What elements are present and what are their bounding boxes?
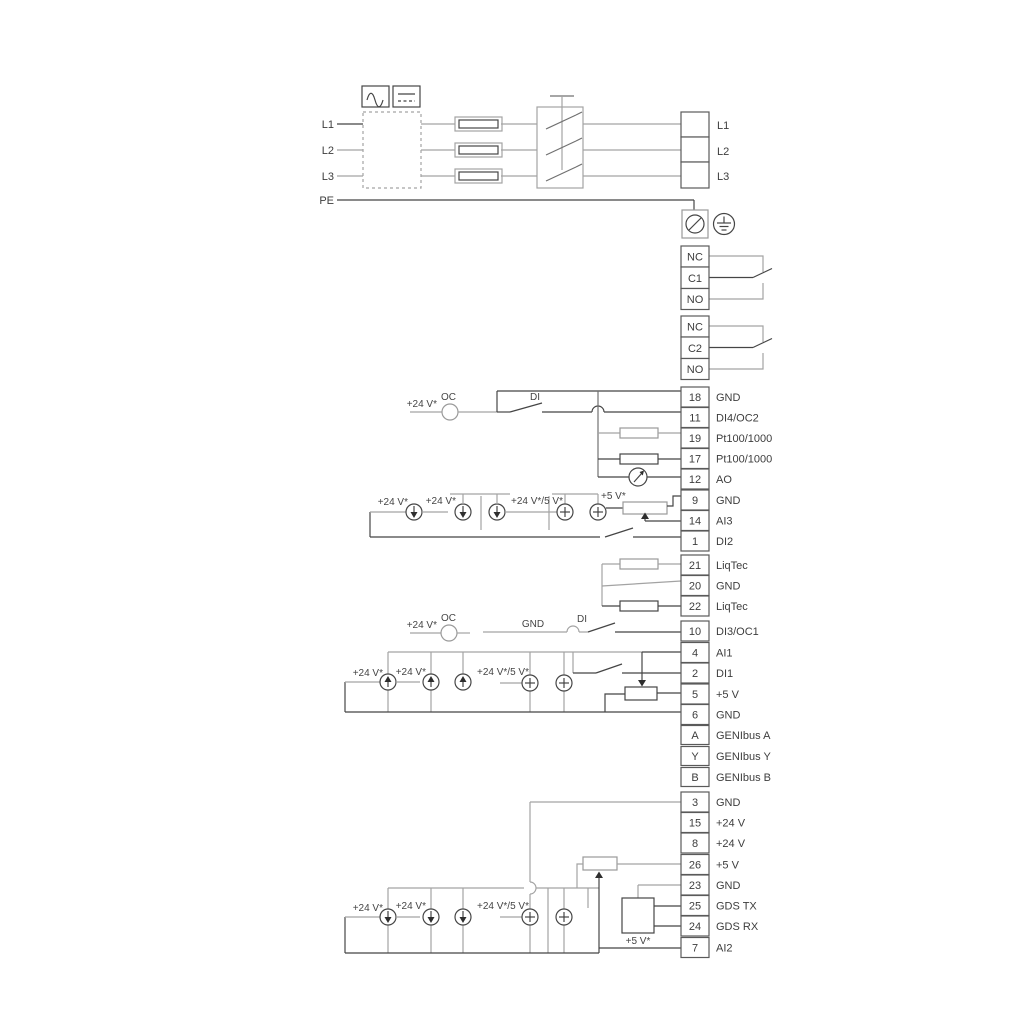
liqtec-sensor-icon: [620, 559, 658, 569]
terminal-23-label: GND: [716, 880, 741, 892]
potentiometer-icon: [625, 687, 657, 700]
terminal-24-number: 24: [689, 921, 701, 933]
terminal-10-label: DI3/OC1: [716, 626, 759, 638]
terminal-2-number: 2: [692, 668, 698, 680]
open-collector-label: OC: [441, 392, 456, 403]
terminal-11-number: 11: [689, 413, 700, 425]
terminal-a-number: A: [691, 730, 699, 742]
open-collector-circle-icon: [442, 404, 458, 420]
digital-input-2-circuit: +24 V* OC DI: [407, 391, 681, 486]
terminal-15-label: +24 V: [716, 818, 746, 830]
terminal-19-number: 19: [689, 433, 701, 445]
terminal-strip-genibus: A GENIbus A Y GENIbus Y B GENIbus B: [681, 726, 771, 787]
terminal-a-label: GENIbus A: [716, 730, 771, 742]
pump-wiring-diagram: L1 L2 L3 PE: [0, 0, 1024, 1024]
relay2-no-label: NO: [687, 364, 704, 376]
terminal-5-number: 5: [692, 689, 698, 701]
relay1-no-label: NO: [687, 294, 704, 306]
terminal-8-number: 8: [692, 838, 698, 850]
terminal-2-label: DI1: [716, 668, 733, 680]
plus24v-5v-label: +24 V*/5 V*: [477, 901, 529, 912]
terminal-strip-io-a: 18 GND 11 DI4/OC2 19 Pt100/1000 17 Pt100…: [681, 387, 772, 551]
analog-input-2-circuit: +24 V* +24 V* +24 V*/5 V* +5 V*: [345, 802, 681, 953]
analog-input-1-circuit: +24 V* +24 V* +24 V*/5 V*: [345, 652, 681, 712]
di3-switch: [588, 623, 615, 632]
terminal-4-number: 4: [692, 648, 698, 660]
phase-l2-in-label: L2: [322, 145, 334, 157]
terminal-9-number: 9: [692, 495, 698, 507]
plus24v-label: +24 V*: [426, 496, 456, 507]
gds-sensor-icon: [622, 898, 654, 933]
earth-ground-icon: [714, 214, 735, 235]
terminal-20-number: 20: [689, 581, 701, 593]
analog-input-3-circuit: +24 V* +24 V* +24 V*/5 V* +5 V*: [370, 491, 681, 537]
dc-icon: [393, 86, 420, 107]
terminal-26-number: 26: [689, 860, 701, 872]
wiring-diagram-page: L1 L2 L3 PE: [0, 0, 1024, 1024]
fuse-icon: [455, 117, 502, 183]
terminal-20-label: GND: [716, 581, 741, 593]
terminal-7-label: AI2: [716, 943, 733, 955]
terminal-18-label: GND: [716, 392, 741, 404]
phase-l1-in-label: L1: [322, 119, 334, 131]
terminal-21-label: LiqTec: [716, 560, 748, 572]
terminal-17-number: 17: [689, 454, 701, 466]
terminal-14-number: 14: [689, 516, 701, 528]
gnd-label: GND: [522, 619, 544, 630]
phase-l3-out-label: L3: [717, 171, 729, 183]
pt100-sensor-icon: [620, 454, 658, 464]
terminal-12-label: AO: [716, 474, 732, 486]
ac-icon: [362, 86, 389, 107]
terminal-l3: [681, 162, 709, 188]
terminal-5-label: +5 V: [716, 689, 740, 701]
plus24v-label: +24 V*: [407, 620, 437, 631]
plus5v-label: +5 V*: [601, 491, 626, 502]
di1-switch: [596, 664, 622, 673]
liqtec-sensor-icon: [620, 601, 658, 611]
terminal-22-label: LiqTec: [716, 601, 748, 613]
terminal-strip-io-f: 3 GND 15 +24 V 8 +24 V 26 +5 V 23 GND 25…: [681, 792, 759, 958]
terminal-19-label: Pt100/1000: [716, 433, 772, 445]
di4-switch: [510, 403, 542, 412]
open-collector-circle-icon: [441, 625, 457, 641]
phase-l2-out-label: L2: [717, 146, 729, 158]
plus24v-label: +24 V*: [353, 903, 383, 914]
phase-wires: [337, 124, 681, 176]
relay2-nc-label: NC: [687, 322, 703, 334]
terminal-6-label: GND: [716, 710, 741, 722]
plus24v-label: +24 V*: [378, 497, 408, 508]
digital-input-3-circuit: +24 V* OC GND DI: [407, 613, 681, 641]
terminal-3-label: GND: [716, 797, 741, 809]
potentiometer-icon: [583, 857, 617, 870]
terminal-23-number: 23: [689, 880, 701, 892]
relay1-section: NC C1 NO: [681, 246, 772, 310]
open-collector-label: OC: [441, 613, 456, 624]
terminal-15-number: 15: [689, 818, 701, 830]
terminal-3-number: 3: [692, 797, 698, 809]
terminal-7-number: 7: [692, 943, 698, 955]
terminal-9-label: GND: [716, 495, 741, 507]
terminal-18-number: 18: [689, 392, 701, 404]
terminal-11-label: DI4/OC2: [716, 413, 759, 425]
relay1-c1-label: C1: [688, 273, 702, 285]
terminal-strip-ai1: 4 AI1 2 DI1 5 +5 V 6 GND: [681, 643, 741, 725]
main-switch-icon: [537, 96, 583, 188]
di-label: DI: [577, 614, 587, 625]
relay1-nc-label: NC: [687, 252, 703, 264]
mains-filter-box: [363, 112, 421, 188]
screen-clamp-icon: [682, 210, 708, 238]
terminal-strip-di3: 10 DI3/OC1: [681, 621, 759, 641]
phase-l1-out-label: L1: [717, 120, 729, 132]
terminal-6-number: 6: [692, 710, 698, 722]
power-section: L1 L2 L3 PE: [319, 86, 734, 238]
plus5v-label: +5 V*: [626, 936, 651, 947]
terminal-b-label: GENIbus B: [716, 772, 771, 784]
terminal-10-number: 10: [689, 626, 701, 638]
plus24v-label: +24 V*: [353, 668, 383, 679]
terminal-strip-liqtec: 21 LiqTec 20 GND 22 LiqTec: [681, 555, 748, 616]
terminal-1-number: 1: [692, 536, 698, 548]
terminal-22-number: 22: [689, 601, 701, 613]
terminal-1-label: DI2: [716, 536, 733, 548]
terminal-25-number: 25: [689, 901, 701, 913]
terminal-l1: [681, 112, 709, 137]
terminal-y-label: GENIbus Y: [716, 751, 771, 763]
pe-wire: [337, 200, 694, 210]
terminal-21-number: 21: [689, 560, 701, 572]
pt100-sensor-icon: [620, 428, 658, 438]
relay2-section: NC C2 NO: [681, 316, 772, 380]
terminal-b-number: B: [691, 772, 698, 784]
liqtec-sensor-circuit: [602, 559, 681, 611]
di2-switch: [605, 528, 633, 537]
terminal-25-label: GDS TX: [716, 901, 757, 913]
terminal-24-label: GDS RX: [716, 921, 759, 933]
plus24v-label: +24 V*: [396, 901, 426, 912]
phase-l3-in-label: L3: [322, 171, 334, 183]
plus24v-5v-label: +24 V*/5 V*: [477, 667, 529, 678]
terminal-26-label: +5 V: [716, 860, 740, 872]
plus24v-5v-label: +24 V*/5 V*: [511, 496, 563, 507]
terminal-17-label: Pt100/1000: [716, 454, 772, 466]
terminal-8-label: +24 V: [716, 838, 746, 850]
terminal-l2: [681, 137, 709, 162]
terminal-4-label: AI1: [716, 648, 733, 660]
pe-label: PE: [319, 195, 334, 207]
di-label: DI: [530, 392, 540, 403]
terminal-12-number: 12: [689, 474, 701, 486]
plus24v-label: +24 V*: [407, 399, 437, 410]
relay2-c2-label: C2: [688, 343, 702, 355]
plus24v-label: +24 V*: [396, 667, 426, 678]
potentiometer-icon: [623, 502, 667, 514]
terminal-14-label: AI3: [716, 516, 733, 528]
terminal-y-number: Y: [691, 751, 699, 763]
